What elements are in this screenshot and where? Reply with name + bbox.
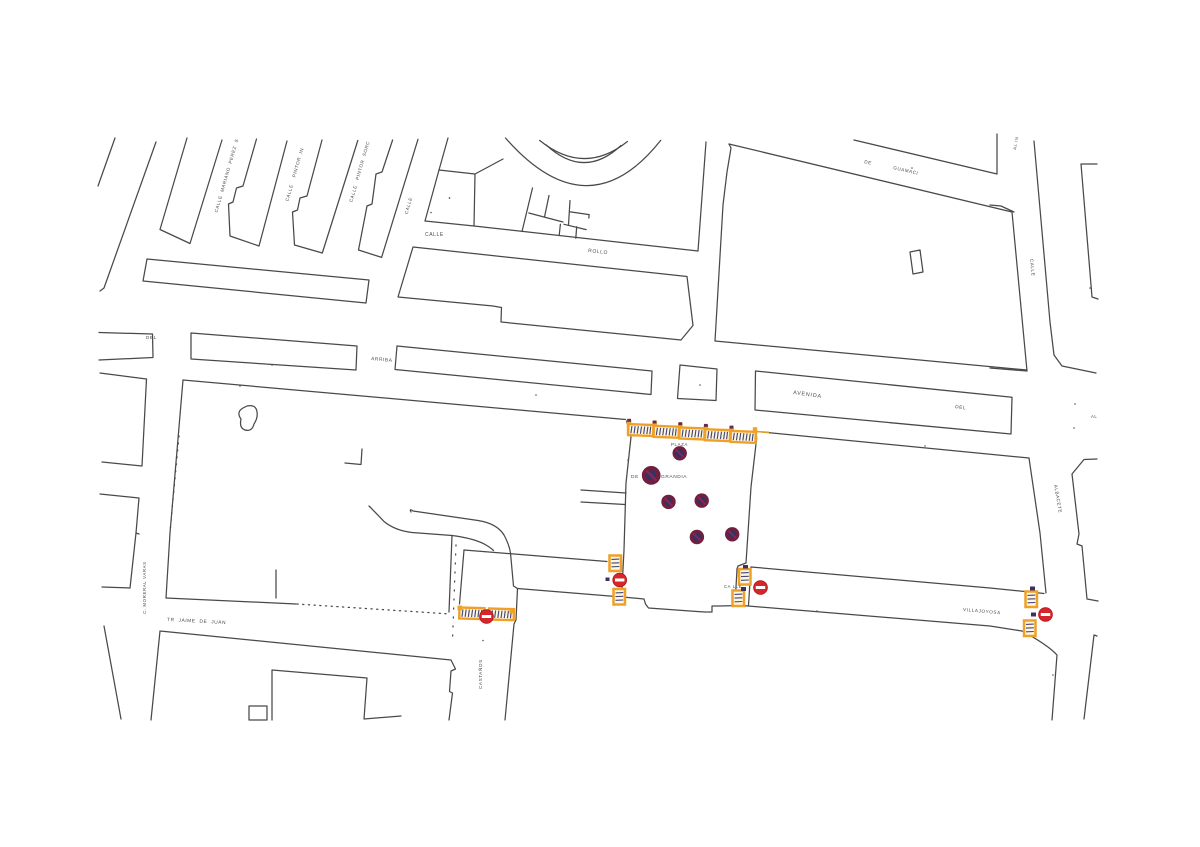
svg-text:AL: AL — [1091, 414, 1097, 419]
svg-text:DE: DE — [631, 474, 639, 480]
svg-text:CA LLE: CA LLE — [724, 584, 742, 589]
svg-text:CASTAÑOS: CASTAÑOS — [477, 659, 483, 689]
svg-text:C. MORERAL VARAS: C. MORERAL VARAS — [142, 561, 147, 614]
svg-text:CALLE: CALLE — [425, 232, 444, 238]
svg-text:PLAZA: PLAZA — [671, 442, 688, 447]
svg-text:DEL: DEL — [146, 335, 157, 340]
svg-text:GRANDIA: GRANDIA — [661, 474, 687, 480]
